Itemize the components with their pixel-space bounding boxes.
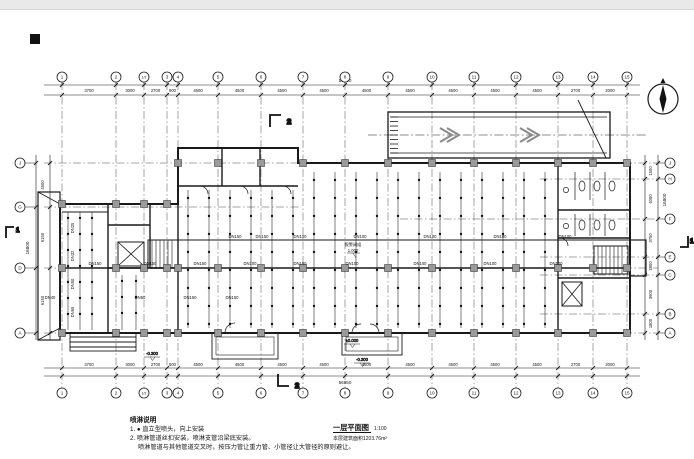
pipe-size-labels: DN150DN150DN100DN100DN100DN100DN100DN150…: [45, 222, 573, 317]
grid-bubble-label: J: [19, 161, 21, 166]
sprinkler-head-icon: [334, 251, 336, 253]
sprinkler-head-icon: [397, 197, 399, 199]
sprinkler-head-icon: [544, 269, 546, 271]
sprinkler-head-icon: [355, 215, 357, 217]
sprinkler-head-icon: [313, 179, 315, 181]
dim-text: 3900: [648, 289, 653, 299]
column: [513, 160, 520, 167]
column: [385, 330, 392, 337]
sprinkler-head-icon: [271, 287, 273, 289]
sprinkler-head-icon: [418, 251, 420, 253]
sprinkler-head-icon: [91, 313, 93, 315]
sprinkler-head-icon: [79, 265, 81, 267]
dim-text: 4500: [193, 362, 203, 367]
column: [215, 330, 222, 337]
sprinkler-head-icon: [523, 233, 525, 235]
sprinkler-head-icon: [397, 215, 399, 217]
grid-bubble-label: 11: [472, 75, 477, 80]
sprinkler-head-icon: [376, 287, 378, 289]
dim-total: 56950: [339, 380, 352, 385]
sprinkler-head-icon: [523, 179, 525, 181]
dim-text: 900: [169, 362, 177, 367]
column: [215, 160, 222, 167]
sprinkler-head-icon: [313, 251, 315, 253]
grid-bubble-label: 15: [624, 75, 630, 80]
sprinkler-head-icon: [397, 233, 399, 235]
column: [113, 265, 120, 272]
dim-text: 3000: [125, 88, 135, 93]
sprinkler-head-icon: [67, 313, 69, 315]
floor-area-note: 本层建筑面积1203.76m²: [333, 435, 387, 442]
door-arcs: [200, 186, 568, 333]
sprinkler-head-icon: [229, 287, 231, 289]
dim-text: 4500: [405, 88, 415, 93]
dim-total: 16800: [25, 241, 30, 254]
sprinkler-head-icon: [460, 215, 462, 217]
grid-bubble-label: 8: [344, 391, 347, 396]
column: [385, 265, 392, 272]
column: [342, 160, 349, 167]
toilet-icon: [594, 181, 600, 191]
sprinkler-head-icon: [334, 179, 336, 181]
dim-text: 3700: [84, 88, 94, 93]
dim-text: 1500: [648, 166, 653, 176]
dim-text: 4050: [648, 194, 653, 204]
pipe-label: DN150: [183, 295, 197, 300]
sprinkler-head-icon: [481, 269, 483, 271]
pipe-label: DN150: [225, 295, 239, 300]
sprinkler-head-icon: [250, 233, 252, 235]
column: [59, 201, 66, 208]
sprinkler-head-icon: [187, 269, 189, 271]
grid-bubble-label: 1: [61, 75, 64, 80]
sprinkler-head-icon: [397, 251, 399, 253]
dim-text: 4500: [277, 88, 287, 93]
grid-bubble-label: 9: [387, 75, 390, 80]
grid-bubble-label: B: [668, 312, 671, 317]
sprinkler-head-icon: [502, 197, 504, 199]
grid-bubble-label: 11: [472, 391, 477, 396]
grid-bubble-label: E: [668, 255, 671, 260]
sprinkler-head-icon: [67, 281, 69, 283]
column: [113, 201, 120, 208]
dim-text: 4500: [235, 362, 245, 367]
column: [385, 160, 392, 167]
sprinkler-head-icon: [79, 217, 81, 219]
sprinkler-head-icon: [418, 179, 420, 181]
sprinkler-head-icon: [523, 323, 525, 325]
column: [59, 265, 66, 272]
section-2-bottom-label: 2: [295, 381, 299, 390]
sprinkler-notes: 喷淋说明 1. ● 直立型喷头，向上安装 2. 喷淋管道丝扣安装，喷淋支管沿梁底…: [130, 415, 355, 451]
sprinkler-head-icon: [250, 305, 252, 307]
sprinkler-head-icon: [91, 217, 93, 219]
grid-bubble-label: G: [18, 205, 22, 210]
sprinkler-head-icon: [334, 197, 336, 199]
sprinkler-head-icon: [355, 323, 357, 325]
sprinkler-head-icon: [187, 251, 189, 253]
grid-bubble-label: 14: [590, 391, 596, 396]
toilet-icon: [594, 220, 600, 230]
dim-text: 4500: [319, 362, 329, 367]
sprinkler-head-icon: [292, 323, 294, 325]
sprinkler-head-icon: [187, 197, 189, 199]
sprinkler-head-icon: [313, 305, 315, 307]
grid-bubble-label: 3: [166, 75, 169, 80]
dim-text: 3750: [648, 233, 653, 243]
sprinkler-head-icon: [292, 215, 294, 217]
sprinkler-head-icon: [439, 179, 441, 181]
grid-bubble-label: 2: [115, 75, 118, 80]
sprinkler-head-icon: [135, 280, 137, 282]
sprinkler-head-icon: [418, 215, 420, 217]
sprinkler-head-icon: [523, 269, 525, 271]
sprinkler-head-icon: [355, 197, 357, 199]
grid-bubble-label: 9: [387, 391, 390, 396]
column: [590, 265, 597, 272]
grid-bubble-label: 7: [302, 75, 305, 80]
dim-text: 4500: [532, 362, 542, 367]
corner-triangle-mark: [38, 192, 60, 340]
level-minus: -0.300: [356, 357, 369, 362]
sprinkler-head-icon: [208, 197, 210, 199]
toilet-icon: [609, 181, 615, 191]
toilet-fixtures: [563, 172, 615, 236]
sprinkler-head-icon: [523, 215, 525, 217]
alarm-valve-label: 报警阀组 1.000: [345, 241, 362, 258]
grid-bubble-label: 6: [260, 391, 263, 396]
column: [513, 265, 520, 272]
sprinkler-head-icon: [271, 305, 273, 307]
vehicle-ramp: [368, 100, 648, 158]
sink-icon: [563, 223, 568, 228]
drawing-sheet: 3700300027009004500450045004500450045004…: [0, 0, 694, 459]
sprinkler-head-icon: [376, 197, 378, 199]
sprinkler-head-icon: [292, 251, 294, 253]
sprinkler-head-icon: [313, 215, 315, 217]
sprinkler-head-icon: [250, 215, 252, 217]
sprinkler-head-icon: [334, 215, 336, 217]
sprinkler-head-icon: [502, 287, 504, 289]
sprinkler-head-icon: [208, 305, 210, 307]
sprinkler-head-icon: [79, 249, 81, 251]
toilet-icon: [579, 220, 585, 230]
sprinkler-head-icon: [67, 297, 69, 299]
pipe-label: DN100: [493, 234, 507, 239]
sprinkler-head-icon: [229, 305, 231, 307]
sprinkler-head-icon: [460, 233, 462, 235]
dim-text: 4500: [319, 88, 329, 93]
dim-text: 2700: [151, 362, 161, 367]
sprinkler-head-icon: [523, 197, 525, 199]
sprinkler-head-icon: [334, 305, 336, 307]
sprinkler-head-icon: [376, 179, 378, 181]
sprinkler-head-icon: [418, 323, 420, 325]
sprinkler-head-icon: [439, 197, 441, 199]
pipe-label: DN100: [558, 234, 572, 239]
sprinkler-head-icon: [271, 323, 273, 325]
sprinkler-head-icon: [544, 287, 546, 289]
column: [258, 160, 265, 167]
sprinkler-head-icon: [376, 323, 378, 325]
grid-bubble-label: J: [669, 161, 671, 166]
column: [164, 201, 171, 208]
sprinkler-head-icon: [271, 269, 273, 271]
sprinkler-head-icon: [397, 269, 399, 271]
sprinkler-head-icon: [67, 265, 69, 267]
pipe-label: DN150: [143, 261, 157, 266]
grid-bubble-label: 5: [217, 75, 220, 80]
dim-text: 2700: [571, 362, 581, 367]
sprinkler-head-icon: [523, 305, 525, 307]
sprinkler-head-icon: [544, 197, 546, 199]
pipe-label: DN150: [193, 261, 207, 266]
sprinkler-head-icon: [502, 179, 504, 181]
sprinkler-head-icon: [376, 269, 378, 271]
sprinkler-head-icon: [334, 323, 336, 325]
pipe-label: DN100: [549, 261, 563, 266]
dim-text: 2000: [605, 88, 615, 93]
sink-icon: [563, 187, 568, 192]
section-2-top-label: 2: [287, 117, 291, 126]
sprinkler-head-icon: [397, 305, 399, 307]
entrance-steps: [70, 333, 402, 359]
sprinkler-head-icon: [67, 249, 69, 251]
sprinkler-head-icon: [481, 305, 483, 307]
section-1-left-mark: [6, 227, 14, 238]
elevator-right-icon: [562, 282, 582, 306]
toilet-icon: [579, 181, 585, 191]
column: [342, 330, 349, 337]
sprinkler-head-icon: [439, 269, 441, 271]
sprinkler-head-icon: [121, 312, 123, 314]
north-arrow-icon: [648, 78, 678, 114]
sprinkler-head-icon: [91, 281, 93, 283]
sprinkler-head-icon: [397, 287, 399, 289]
pipe-label: DN100: [423, 234, 437, 239]
sprinkler-head-icon: [250, 287, 252, 289]
sprinkler-head-icon: [292, 305, 294, 307]
sprinkler-head-icon: [208, 269, 210, 271]
notes-line-3: 喷淋管道与其他管道交叉时，按压力管让重力管、小管径让大管径的原则避让。: [138, 443, 355, 451]
pipe-label: DN25: [70, 222, 75, 233]
dim-text: 1800: [648, 261, 653, 271]
sprinkler-head-icon: [355, 287, 357, 289]
column: [471, 330, 478, 337]
sprinkler-head-icon: [502, 215, 504, 217]
pipe-label: DN100: [293, 234, 307, 239]
sprinkler-head-icon: [355, 179, 357, 181]
sprinkler-head-icon: [67, 217, 69, 219]
dim-text: 4500: [405, 362, 415, 367]
sprinkler-head-icon: [187, 323, 189, 325]
drawing-title: 一层平面图: [333, 423, 369, 432]
notes-heading: 喷淋说明: [130, 415, 157, 424]
sprinkler-head-icon: [79, 313, 81, 315]
sprinkler-head-icon: [313, 233, 315, 235]
notes-line-2: 2. 喷淋管道丝扣安装，喷淋支管沿梁底安装。: [130, 434, 254, 442]
dim-text: 2700: [571, 88, 581, 93]
column: [471, 160, 478, 167]
sprinkler-head-icon: [271, 197, 273, 199]
sprinkler-head-icon: [376, 305, 378, 307]
sprinkler-head-icon: [313, 269, 315, 271]
sprinkler-head-icon: [460, 305, 462, 307]
sprinkler-head-icon: [502, 323, 504, 325]
column: [555, 330, 562, 337]
dim-text: 1800: [648, 318, 653, 328]
sprinkler-head-icon: [376, 233, 378, 235]
column: [624, 160, 631, 167]
sprinkler-head-icon: [135, 312, 137, 314]
column: [215, 265, 222, 272]
sprinkler-head-icon: [397, 179, 399, 181]
sprinkler-head-icon: [271, 233, 273, 235]
sprinkler-head-icon: [292, 287, 294, 289]
level-minus-left: -0.300: [146, 351, 159, 356]
sprinkler-head-icon: [481, 197, 483, 199]
pipe-label: DN40: [45, 295, 56, 300]
grid-bubble-label: 3: [166, 391, 169, 396]
pipe-label: DN100: [293, 261, 307, 266]
sprinkler-head-icon: [250, 323, 252, 325]
sprinkler-head-icon: [502, 251, 504, 253]
sprinkler-head-icon: [502, 269, 504, 271]
dim-text: 4500: [448, 362, 458, 367]
section-2-top-mark: [270, 115, 281, 127]
grid-bubble-label: 14: [590, 75, 596, 80]
sprinkler-head-icon: [460, 269, 462, 271]
sprinkler-head-icon: [460, 323, 462, 325]
dim-text: 6150: [40, 232, 45, 242]
title-block: 一层平面图 1:100 本层建筑面积1203.76m²: [333, 423, 387, 442]
sprinkler-head-icon: [229, 323, 231, 325]
sprinkler-head-icon: [79, 281, 81, 283]
grid-bubble-label: 13: [555, 75, 561, 80]
pipe-label: DN100: [353, 234, 367, 239]
column: [513, 330, 520, 337]
sprinkler-head-icon: [418, 233, 420, 235]
sprinkler-head-icon: [355, 269, 357, 271]
sprinkler-head-icon: [334, 233, 336, 235]
sprinkler-head-icon: [460, 179, 462, 181]
notes-line-1: 1. ● 直立型喷头，向上安装: [130, 425, 204, 433]
sprinkler-head-icon: [418, 269, 420, 271]
sprinkler-head-icon: [250, 251, 252, 253]
sprinkler-head-icon: [187, 233, 189, 235]
grid-bubble-label: F: [669, 217, 672, 222]
grid-bubble-label: 2: [115, 391, 118, 396]
column: [175, 330, 182, 337]
sprinkler-head-icon: [91, 297, 93, 299]
dim-text: 2000: [605, 362, 615, 367]
elevator-left-icon: [118, 242, 144, 266]
column: [555, 160, 562, 167]
sprinkler-head-icon: [271, 215, 273, 217]
sprinkler-head-icon: [460, 287, 462, 289]
dim-text: 3700: [84, 362, 94, 367]
sprinkler-head-icon: [481, 179, 483, 181]
dim-text: 900: [169, 88, 177, 93]
sprinkler-head-icon: [187, 305, 189, 307]
sprinkler-head-icon: [439, 215, 441, 217]
sprinkler-head-icon: [439, 323, 441, 325]
column: [164, 330, 171, 337]
dim-text: 4500: [490, 88, 500, 93]
sprinkler-head-icon: [208, 233, 210, 235]
sprinkler-head-icon: [544, 215, 546, 217]
column: [624, 330, 631, 337]
grid-bubble-label: 12: [513, 75, 519, 80]
sprinkler-head-icon: [79, 233, 81, 235]
sprinkler-head-icon: [250, 269, 252, 271]
column: [258, 265, 265, 272]
sprinkler-head-icon: [229, 215, 231, 217]
sprinkler-head-icon: [229, 251, 231, 253]
sprinkler-head-icon: [376, 215, 378, 217]
grid-bubble-label: 10: [429, 75, 435, 80]
sprinkler-head-icon: [208, 251, 210, 253]
sprinkler-head-icon: [208, 287, 210, 289]
grid-bubble-label: 1: [61, 391, 64, 396]
pipe-label: DN150: [228, 234, 242, 239]
grid-bubble-label: 5: [217, 391, 220, 396]
column: [141, 330, 148, 337]
corner-mark-icon: [30, 34, 40, 44]
dim-total: 16800: [662, 193, 667, 206]
sprinkler-head-icon: [67, 233, 69, 235]
sprinkler-head-icon: [121, 280, 123, 282]
sprinkler-head-icon: [481, 233, 483, 235]
column: [113, 330, 120, 337]
dim-text: 4500: [448, 88, 458, 93]
grid-bubble-label: 8: [344, 75, 347, 80]
sprinkler-head-icon: [208, 323, 210, 325]
sprinkler-head-icon: [376, 251, 378, 253]
ramp-break-line: [578, 100, 606, 158]
sprinkler-head-icon: [187, 215, 189, 217]
column: [164, 265, 171, 272]
column: [175, 265, 182, 272]
alarm-valve-name: 报警阀组: [345, 241, 362, 248]
sprinkler-head-icon: [460, 197, 462, 199]
dim-text: 4500: [235, 88, 245, 93]
sprinkler-head-icon: [229, 269, 231, 271]
sprinkler-head-icon: [313, 197, 315, 199]
sprinkler-head-icon: [502, 305, 504, 307]
sprinkler-head-icon: [229, 197, 231, 199]
sprinkler-head-icon: [460, 251, 462, 253]
alarm-valve-level: 1.000: [348, 248, 359, 253]
dim-text: 4500: [532, 88, 542, 93]
sprinkler-head-icon: [334, 269, 336, 271]
column: [590, 330, 597, 337]
grid-bubble-label: 1/2: [142, 76, 147, 80]
pipe-label: DN100: [243, 261, 257, 266]
sprinkler-head-icon: [481, 323, 483, 325]
column: [429, 265, 436, 272]
sprinkler-head-icon: [79, 297, 81, 299]
grid-bubble-label: 12: [513, 391, 519, 396]
grid-bubble-label: 15: [624, 391, 630, 396]
column: [590, 160, 597, 167]
stair-right-icon: [594, 246, 628, 274]
dim-text: 2700: [151, 88, 161, 93]
toilet-icon: [609, 220, 615, 230]
floor-plan-canvas: 3700300027009004500450045004500450045004…: [0, 0, 694, 459]
pipe-label: DN100: [345, 261, 359, 266]
sprinkler-head-icon: [439, 251, 441, 253]
